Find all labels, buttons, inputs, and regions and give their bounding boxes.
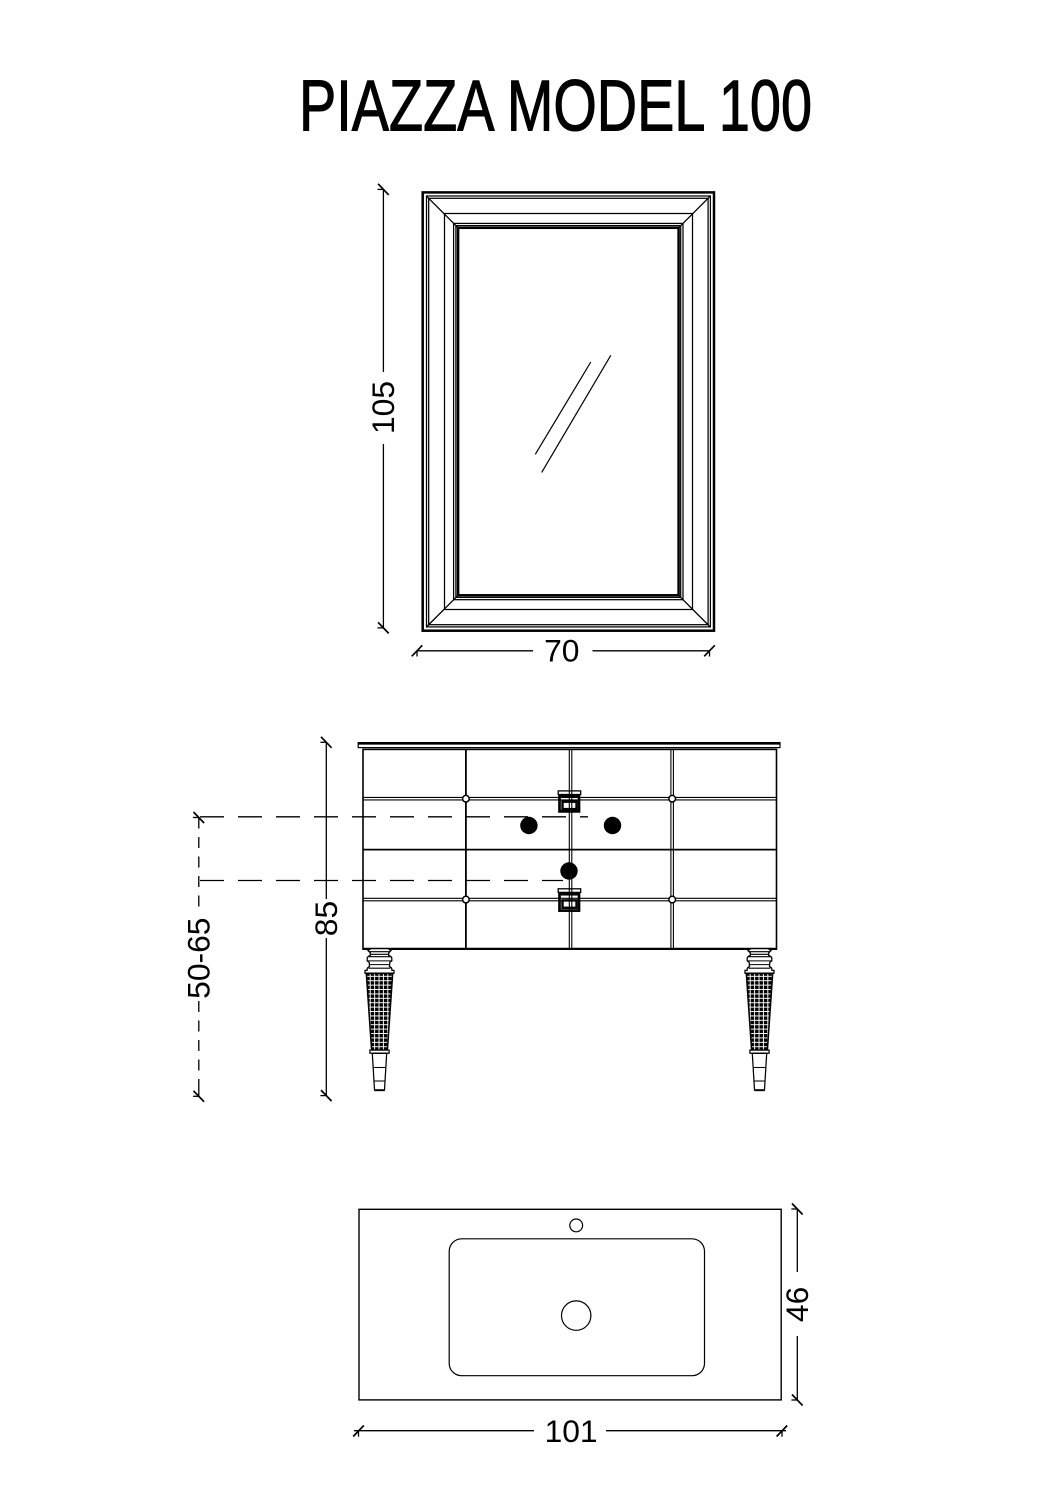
- svg-text:PIAZZA MODEL 100: PIAZZA MODEL 100: [299, 66, 812, 147]
- svg-text:70: 70: [544, 633, 579, 669]
- svg-text:85: 85: [308, 901, 344, 936]
- svg-text:105: 105: [365, 381, 401, 434]
- svg-text:50-65: 50-65: [181, 918, 217, 999]
- svg-text:101: 101: [545, 1413, 598, 1449]
- svg-text:46: 46: [779, 1287, 815, 1322]
